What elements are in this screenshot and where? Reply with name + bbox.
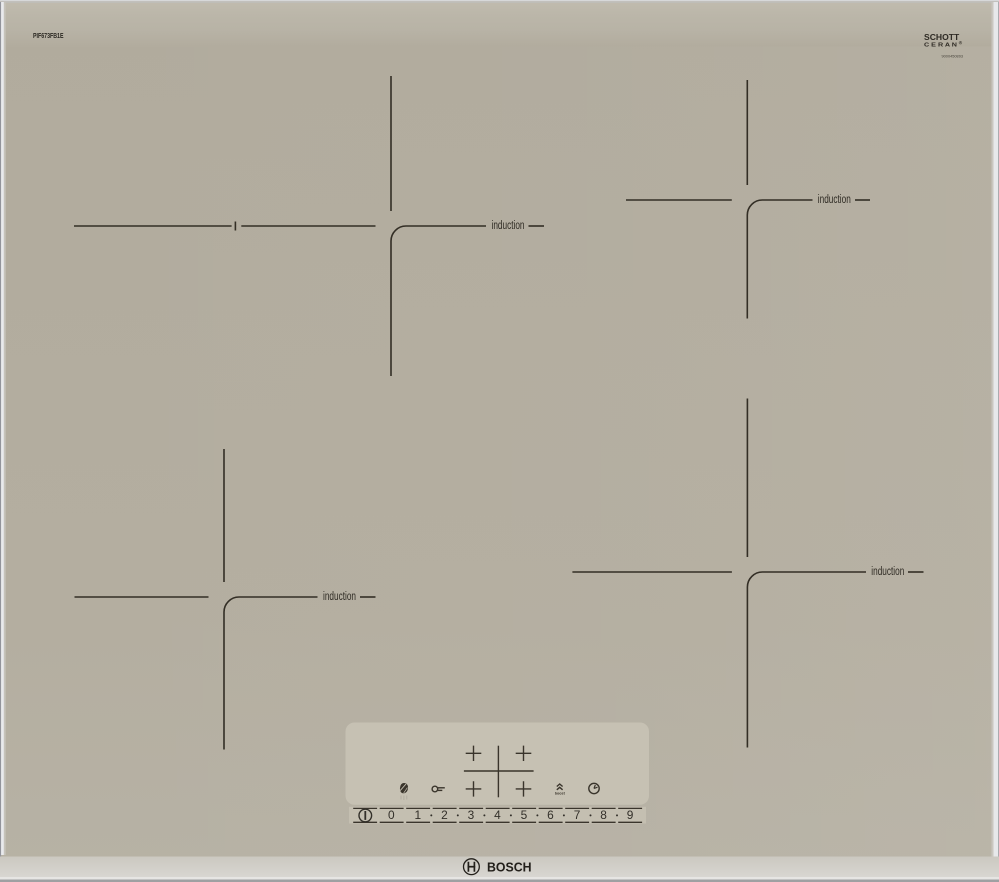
svg-text:5: 5 — [521, 808, 528, 822]
svg-text:8: 8 — [600, 808, 607, 822]
svg-text:3: 3 — [468, 808, 475, 822]
svg-text:®: ® — [959, 39, 963, 45]
svg-text:BOSCH: BOSCH — [487, 860, 532, 875]
svg-text:6: 6 — [547, 808, 554, 822]
svg-text:9000450893: 9000450893 — [942, 55, 964, 59]
svg-text:4: 4 — [494, 808, 501, 822]
svg-text:induction: induction — [323, 591, 356, 603]
svg-text:PIF673FB1E: PIF673FB1E — [33, 33, 64, 40]
svg-text:boost: boost — [555, 791, 566, 796]
svg-text:7: 7 — [574, 808, 581, 822]
svg-text:1: 1 — [414, 808, 421, 822]
svg-text:induction: induction — [871, 566, 904, 578]
svg-text:SCHOTT: SCHOTT — [924, 33, 959, 42]
svg-text:0: 0 — [388, 808, 395, 822]
svg-text:9: 9 — [627, 808, 634, 822]
svg-text:C E R A N: C E R A N — [924, 42, 957, 48]
svg-text:induction: induction — [492, 220, 525, 232]
svg-text:2: 2 — [441, 808, 448, 822]
svg-text:induction: induction — [818, 194, 851, 206]
